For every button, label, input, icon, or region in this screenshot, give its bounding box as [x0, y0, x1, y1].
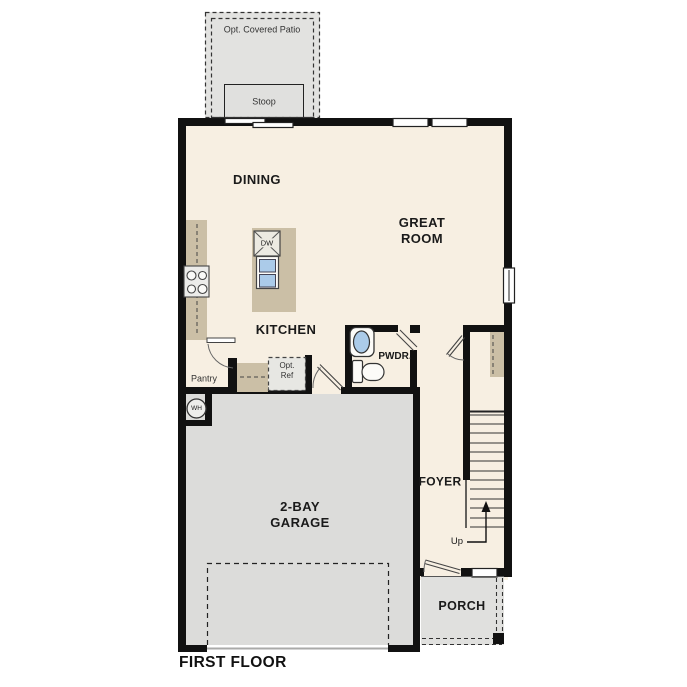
pantry-door	[207, 338, 235, 368]
patio-label: Opt. Covered Patio	[224, 24, 301, 35]
powder-label: PWDR.	[378, 351, 411, 364]
window-front	[472, 569, 497, 578]
stoop-label: Stoop	[252, 96, 276, 107]
window-top-1	[393, 119, 428, 127]
porch-post	[493, 633, 504, 644]
plan-linework	[0, 0, 687, 687]
up-label: Up	[451, 536, 463, 548]
pantry-label: Pantry	[191, 373, 217, 384]
great-room-label: GREAT ROOM	[399, 215, 446, 248]
porch-label: PORCH	[438, 599, 485, 615]
sliding-door	[225, 119, 293, 128]
garage-label: 2-BAY GARAGE	[270, 499, 329, 532]
stairs-up-arrow	[467, 501, 491, 542]
opt-ref-label: Opt. Ref	[279, 361, 294, 381]
powder-corner-door	[397, 330, 418, 351]
powder-sink	[350, 328, 374, 357]
window-top-2	[432, 119, 467, 127]
cooktop	[184, 266, 209, 297]
kitchen-sink	[257, 257, 279, 289]
floor-plan: Opt. Covered Patio Stoop DINING GREAT RO…	[0, 0, 687, 687]
water-heater-label: WH	[191, 404, 202, 412]
garage-entry-door	[313, 365, 343, 391]
foyer-label: FOYER	[419, 475, 462, 490]
garage-door-dashed	[208, 564, 389, 646]
dining-label: DINING	[233, 172, 281, 188]
kitchen-label: KITCHEN	[256, 322, 317, 338]
front-door	[424, 560, 461, 574]
first-floor-title: FIRST FLOOR	[179, 654, 287, 672]
toilet	[353, 361, 385, 383]
foyer-closet-door	[447, 336, 465, 361]
dishwasher-label: DW	[260, 238, 275, 247]
